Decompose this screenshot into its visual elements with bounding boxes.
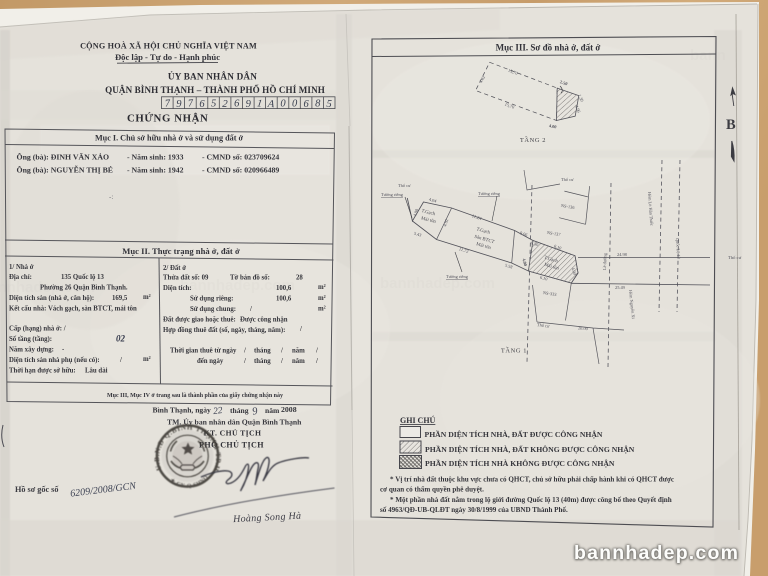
svg-text:m²: m²: [143, 294, 151, 301]
svg-text:100,6: 100,6: [276, 296, 292, 303]
svg-text:CHỨNG NHẬN: CHỨNG NHẬN: [127, 112, 208, 125]
svg-text:Lề đường: Lề đường: [602, 252, 608, 270]
svg-text:1/ Nhà ở: 1/ Nhà ở: [9, 264, 34, 271]
svg-text:Thời hạn được sở hữu:: Thời hạn được sở hữu:: [9, 368, 76, 375]
svg-text:Thời gian thuê từ ngày: Thời gian thuê từ ngày: [170, 348, 237, 355]
svg-text:6: 6: [234, 99, 240, 110]
svg-text:Cấp (hạng) nhà ở: /: Cấp (hạng) nhà ở: /: [9, 326, 66, 333]
svg-text:Thổ cư: Thổ cư: [728, 255, 742, 260]
svg-text:Diện tích:: Diện tích:: [163, 285, 192, 292]
svg-text:cơ quan có thẩm quyền phê duyệ: cơ quan có thẩm quyền phê duyệt.: [380, 486, 484, 494]
svg-text:m²: m²: [318, 284, 326, 291]
svg-text:số 4963/QĐ-UB-QLĐT ngày 30/8/1: số 4963/QĐ-UB-QLĐT ngày 30/8/1999 của UB…: [380, 506, 568, 514]
svg-text:bann: bann: [690, 47, 726, 64]
svg-text:tháng: tháng: [254, 358, 271, 365]
svg-text:bannhadep.com: bannhadep.com: [380, 275, 495, 292]
svg-text:6: 6: [303, 99, 309, 110]
svg-text:* Vị trí nhà đất thuộc khu vực: * Vị trí nhà đất thuộc khu vực chưa có Q…: [390, 476, 674, 484]
svg-text:Địa chỉ:: Địa chỉ:: [9, 274, 32, 281]
svg-text:Tường riêng: Tường riêng: [446, 274, 469, 279]
svg-text:ỦY BAN NHÂN DÂN: ỦY BAN NHÂN DÂN: [168, 72, 257, 82]
svg-text:169,5: 169,5: [112, 295, 128, 302]
svg-text:20.00: 20.00: [578, 325, 589, 331]
svg-text:Năm xây dựng:: Năm xây dựng:: [9, 347, 54, 354]
svg-text:Mục I. Chủ sở hữu nhà ở và sử: Mục I. Chủ sở hữu nhà ở và sử dụng đất ở: [95, 134, 244, 143]
svg-text:/: /: [280, 358, 283, 365]
svg-text:Thửa đất số: 09: Thửa đất số: 09: [163, 275, 209, 282]
svg-text:Sử dụng riêng:: Sử dụng riêng:: [190, 296, 233, 303]
svg-text:Phường 26 Quận Bình Thạnh.: Phường 26 Quận Bình Thạnh.: [40, 285, 128, 292]
svg-text:GHI CHÚ: GHI CHÚ: [400, 415, 436, 425]
svg-text:Kết cấu nhà: Vách gạch, sàn B: Kết cấu nhà: Vách gạch, sàn BTCT, mái tô…: [9, 306, 137, 313]
svg-text:QUẬN BÌNH THẠNH – THÀNH PHỐ HỒ: QUẬN BÌNH THẠNH – THÀNH PHỐ HỒ CHÍ MINH: [105, 85, 325, 95]
svg-text:-:: -:: [109, 193, 113, 201]
svg-text:5: 5: [326, 99, 332, 110]
svg-text:đến ngày: đến ngày: [197, 358, 224, 365]
svg-text:Mục II. Thực trạng nhà ở, đất: Mục II. Thực trạng nhà ở, đất ở: [122, 246, 240, 256]
svg-text:PHẦN DIỆN TÍCH NHÀ KHÔNG ĐƯỢC: PHẦN DIỆN TÍCH NHÀ KHÔNG ĐƯỢC CÔNG NHẬN: [425, 458, 615, 468]
svg-text:/: /: [119, 357, 122, 364]
svg-text:/: /: [243, 358, 246, 365]
svg-text:Hồ sơ gốc số: Hồ sơ gốc số: [15, 485, 59, 494]
svg-text:năm: năm: [265, 406, 280, 415]
svg-text:tháng: tháng: [254, 348, 271, 355]
svg-text:- Năm sinh: 1933: - Năm sinh: 1933: [127, 153, 184, 162]
svg-text:Ông (bà): NGUYỄN THỊ BÉ: Ông (bà): NGUYỄN THỊ BÉ: [17, 165, 113, 175]
svg-text:- CMND số: 020966489: - CMND số: 020966489: [202, 166, 279, 175]
svg-text:0: 0: [292, 99, 298, 110]
svg-text:28: 28: [296, 275, 303, 282]
svg-text:24.98: 24.98: [617, 252, 628, 257]
svg-text:Tờ bản đồ số:: Tờ bản đồ số:: [230, 275, 270, 282]
svg-text:Hợp đồng thuê đất (số, ngày, t: Hợp đồng thuê đất (số, ngày, tháng, năm)…: [163, 327, 285, 334]
svg-text:/: /: [315, 358, 318, 365]
svg-text:Ông (bà): ĐINH VĂN XẢO: Ông (bà): ĐINH VĂN XẢO: [17, 152, 110, 162]
svg-text:8: 8: [315, 99, 321, 110]
svg-text:* Một phần nhà đất nằm trong l: * Một phần nhà đất nằm trong lộ giới đườ…: [390, 496, 672, 504]
svg-text:25.49: 25.49: [615, 285, 626, 290]
svg-text:Được công nhận: Được công nhận: [240, 317, 288, 324]
svg-text:02: 02: [116, 334, 126, 344]
svg-text:/: /: [280, 348, 283, 355]
svg-text:- CMND số: 023709624: - CMND số: 023709624: [202, 153, 279, 162]
svg-text:PHẦN DIỆN TÍCH NHÀ, ĐẤT ĐƯỢC C: PHẦN DIỆN TÍCH NHÀ, ĐẤT ĐƯỢC CÔNG NHẬN: [425, 429, 603, 439]
svg-text:Độc lập - Tự do - Hạnh phúc: Độc lập - Tự do - Hạnh phúc: [115, 52, 220, 62]
svg-text:Mục III, Mục IV ở trang sau là: Mục III, Mục IV ở trang sau là thành phầ…: [107, 392, 283, 399]
svg-text:6: 6: [199, 99, 205, 110]
svg-text:2/ Đất ở: 2/ Đất ở: [163, 265, 186, 272]
svg-text:Diện tích sàn (nhà ở, căn hộ):: Diện tích sàn (nhà ở, căn hộ):: [9, 295, 94, 302]
svg-text:/: /: [315, 348, 318, 355]
svg-text:Tường riêng: Tường riêng: [381, 192, 404, 197]
svg-text:Số tầng (tầng):: Số tầng (tầng):: [9, 336, 52, 343]
svg-text:Thổ cư: Thổ cư: [398, 183, 411, 188]
svg-text:- Năm sinh: 1942: - Năm sinh: 1942: [127, 166, 184, 175]
svg-text:năm: năm: [292, 348, 305, 355]
svg-text:Diện tích sàn nhà phụ (nếu có): Diện tích sàn nhà phụ (nếu có):: [9, 357, 100, 364]
svg-text:TẦNG 1: TẦNG 1: [501, 347, 527, 355]
svg-text:100,6: 100,6: [276, 285, 292, 292]
svg-text:9: 9: [246, 99, 252, 110]
svg-text:Tường riêng: Tường riêng: [478, 191, 501, 196]
svg-text:135 Quốc lộ 13: 135 Quốc lộ 13: [61, 274, 104, 281]
svg-text:Bình Thạnh, ngày: Bình Thạnh, ngày: [153, 406, 212, 415]
svg-text:Sử dụng chung:: Sử dụng chung:: [190, 306, 236, 313]
svg-text:B: B: [726, 117, 736, 133]
svg-text:22: 22: [213, 406, 224, 417]
svg-text:m²: m²: [318, 295, 326, 302]
svg-text:Mục III. Sơ đồ nhà ở, đất ở: Mục III. Sơ đồ nhà ở, đất ở: [496, 43, 601, 53]
svg-text:Lâu dài: Lâu dài: [85, 368, 108, 375]
svg-text:PHẦN DIỆN TÍCH NHÀ, ĐẤT KHÔNG: PHẦN DIỆN TÍCH NHÀ, ĐẤT KHÔNG ĐƯỢC CÔNG …: [425, 444, 635, 454]
svg-text:9: 9: [176, 99, 182, 110]
svg-text:2008: 2008: [281, 405, 297, 414]
svg-text:CỘNG HOÀ XÃ HỘI CHỦ NGHĨA VIỆT: CỘNG HOÀ XÃ HỘI CHỦ NGHĨA VIỆT NAM: [80, 41, 257, 51]
svg-text:0: 0: [280, 99, 286, 110]
svg-text:m²: m²: [318, 306, 326, 313]
svg-text:TẦNG 2: TẦNG 2: [520, 136, 546, 144]
svg-text:tháng: tháng: [230, 406, 249, 415]
svg-text:/: /: [243, 348, 246, 355]
svg-text:m²: m²: [143, 356, 151, 363]
svg-text:Đất được giao hoặc thuê:: Đất được giao hoặc thuê:: [163, 317, 236, 324]
svg-text:/: /: [249, 306, 252, 313]
svg-text:Thổ cư: Thổ cư: [561, 177, 574, 182]
svg-text:năm: năm: [292, 358, 305, 365]
svg-text:5: 5: [211, 99, 216, 110]
svg-text:/: /: [299, 326, 302, 333]
